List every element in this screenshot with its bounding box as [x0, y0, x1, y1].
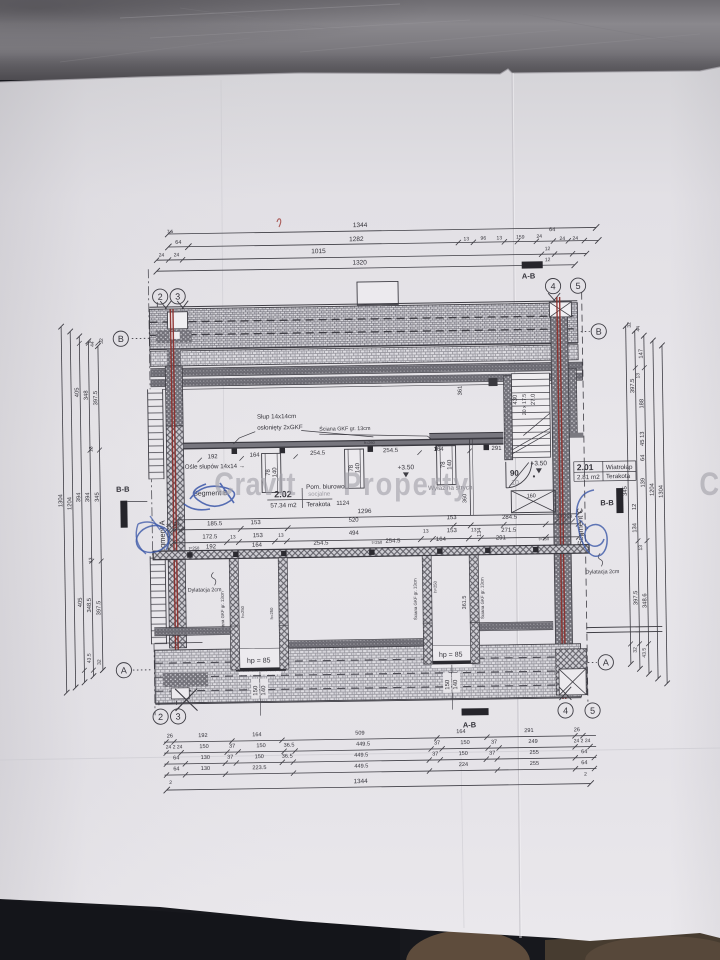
svg-text:430: 430 [513, 395, 519, 405]
svg-text:397.5: 397.5 [93, 391, 99, 406]
svg-text:150: 150 [460, 740, 469, 746]
svg-text:449.5: 449.5 [354, 763, 368, 769]
svg-text:A-B: A-B [522, 271, 536, 280]
svg-text:159: 159 [516, 235, 525, 241]
svg-text:64: 64 [581, 749, 587, 755]
svg-text:13: 13 [638, 545, 644, 551]
svg-text:153: 153 [251, 520, 262, 526]
svg-text:147: 147 [639, 349, 645, 359]
svg-text:12: 12 [545, 246, 551, 252]
svg-text:osłonięty 2xGKF: osłonięty 2xGKF [257, 424, 303, 432]
svg-text:361: 361 [458, 386, 464, 396]
svg-text:192: 192 [208, 454, 219, 460]
svg-text:43.5: 43.5 [87, 653, 93, 663]
svg-text:socjalne: socjalne [308, 492, 331, 498]
svg-text:13: 13 [88, 557, 94, 563]
svg-text:Wiatrołap: Wiatrołap [606, 464, 633, 471]
svg-text:254.5: 254.5 [310, 451, 326, 457]
svg-text:405: 405 [78, 597, 84, 607]
svg-text:Ściana GKF gr. 13cm: Ściana GKF gr. 13cm [480, 577, 486, 619]
svg-text:150: 150 [253, 685, 259, 696]
svg-text:24: 24 [536, 234, 542, 240]
svg-text:150: 150 [199, 744, 208, 750]
svg-text:172.5: 172.5 [202, 534, 218, 540]
svg-text:153: 153 [447, 528, 458, 534]
svg-text:Property: Property [343, 467, 470, 503]
svg-text:13: 13 [496, 235, 502, 241]
svg-text:271.5: 271.5 [501, 528, 517, 534]
svg-text:B: B [118, 334, 124, 344]
svg-text:397.5: 397.5 [633, 591, 639, 606]
svg-text:348: 348 [84, 390, 90, 400]
svg-text:A: A [121, 665, 127, 675]
svg-text:37: 37 [432, 751, 438, 757]
svg-text:43.5: 43.5 [642, 648, 648, 658]
svg-text:1204: 1204 [67, 496, 73, 510]
svg-text:1320: 1320 [352, 259, 367, 266]
svg-text:B-B: B-B [116, 485, 130, 494]
svg-text:32: 32 [99, 338, 105, 344]
svg-text:291: 291 [524, 728, 533, 734]
svg-text:150: 150 [445, 679, 451, 690]
svg-text:64: 64 [549, 227, 555, 233]
svg-text:t=250: t=250 [189, 546, 200, 551]
svg-text:130: 130 [201, 766, 210, 772]
svg-text:249: 249 [528, 739, 537, 745]
svg-text:3: 3 [175, 292, 180, 302]
svg-text:37: 37 [229, 744, 235, 750]
svg-text:64: 64 [640, 454, 646, 461]
svg-text:hp = 85: hp = 85 [439, 652, 463, 659]
svg-text:2: 2 [169, 780, 172, 786]
svg-text:24: 24 [159, 253, 165, 259]
svg-text:254.5: 254.5 [385, 538, 401, 544]
svg-text:1204: 1204 [650, 482, 656, 496]
svg-text:405: 405 [75, 388, 81, 398]
svg-text:13: 13 [635, 373, 641, 379]
svg-text:1296: 1296 [357, 508, 372, 515]
svg-text:361.5: 361.5 [462, 596, 468, 610]
svg-text:185.5: 185.5 [207, 521, 223, 527]
svg-text:4: 4 [550, 281, 555, 291]
svg-text:12: 12 [545, 257, 551, 263]
svg-text:348.6: 348.6 [642, 593, 648, 608]
svg-text:20 x 17.5: 20 x 17.5 [522, 394, 528, 416]
svg-text:4: 4 [563, 706, 568, 716]
svg-text:348.5: 348.5 [87, 598, 93, 613]
svg-text:255: 255 [530, 761, 539, 767]
svg-text:44: 44 [636, 326, 642, 332]
svg-text:192: 192 [198, 733, 207, 739]
svg-text:1304: 1304 [58, 493, 64, 507]
svg-text:h=250: h=250 [269, 607, 274, 620]
svg-text:164: 164 [433, 447, 444, 453]
svg-text:B-B: B-B [600, 498, 614, 507]
svg-text:Cravtt: Cravtt [214, 467, 296, 503]
svg-text:h=250: h=250 [433, 580, 438, 593]
svg-text:509: 509 [355, 731, 364, 737]
svg-text:134: 134 [477, 528, 483, 537]
svg-text:13: 13 [88, 446, 94, 452]
svg-text:26: 26 [167, 733, 173, 739]
svg-text:7,5: 7,5 [167, 229, 174, 234]
svg-text:3: 3 [176, 712, 181, 722]
svg-text:164: 164 [252, 732, 261, 738]
svg-text:h=250: h=250 [240, 605, 245, 618]
svg-text:2: 2 [158, 292, 163, 302]
svg-text:164: 164 [252, 543, 263, 549]
svg-text:394: 394 [76, 492, 82, 503]
svg-text:255: 255 [529, 750, 538, 756]
svg-text:254.5: 254.5 [383, 448, 399, 454]
svg-text:188: 188 [639, 399, 645, 409]
svg-text:24 2 24: 24 2 24 [557, 514, 573, 519]
svg-text:1344: 1344 [354, 778, 369, 785]
svg-text:284.5: 284.5 [502, 515, 518, 521]
svg-text:1344: 1344 [353, 222, 368, 229]
svg-text:449.5: 449.5 [356, 741, 370, 747]
svg-text:Terakota: Terakota [606, 473, 631, 480]
svg-text:12: 12 [632, 504, 638, 511]
svg-text:1304: 1304 [659, 484, 665, 498]
svg-text:13: 13 [463, 236, 469, 242]
svg-text:Dylatacja 2cm: Dylatacja 2cm [585, 569, 619, 576]
svg-text:224: 224 [459, 762, 468, 768]
svg-text:37: 37 [491, 740, 497, 746]
svg-text:164: 164 [436, 537, 447, 543]
svg-text:345: 345 [623, 486, 629, 496]
svg-text:Terakota: Terakota [306, 501, 331, 508]
svg-text:164: 164 [456, 729, 465, 735]
svg-text:2.01: 2.01 [577, 462, 594, 472]
svg-text:+3.50: +3.50 [530, 460, 547, 467]
svg-text:Ściana GKF gr. 13cm: Ściana GKF gr. 13cm [413, 578, 419, 620]
svg-text:37: 37 [227, 755, 233, 761]
svg-text:A: A [603, 658, 609, 668]
svg-text:64: 64 [581, 760, 587, 766]
svg-text:44: 44 [90, 341, 96, 347]
svg-text:24 2 24: 24 2 24 [574, 738, 591, 744]
svg-text:32: 32 [633, 647, 639, 653]
svg-text:153: 153 [447, 515, 458, 521]
svg-text:h=260: h=260 [364, 441, 375, 445]
svg-text:64: 64 [175, 240, 181, 246]
svg-text:291: 291 [491, 446, 502, 452]
svg-text:t=250: t=250 [539, 536, 550, 541]
svg-text:223.5: 223.5 [252, 765, 266, 771]
svg-text:150: 150 [255, 754, 264, 760]
svg-text:Pom. biurowo: Pom. biurowo [306, 483, 345, 491]
svg-text:2: 2 [584, 772, 587, 778]
svg-text:1015: 1015 [311, 248, 326, 255]
svg-text:2: 2 [158, 712, 163, 722]
svg-text:150: 150 [256, 743, 265, 749]
svg-text:32: 32 [97, 659, 103, 665]
svg-text:90: 90 [510, 469, 520, 478]
svg-text:254.5: 254.5 [313, 541, 329, 547]
svg-text:5: 5 [590, 706, 595, 716]
svg-text:164: 164 [250, 453, 261, 459]
svg-text:13: 13 [278, 533, 284, 539]
svg-text:C: C [699, 467, 719, 503]
svg-text:24: 24 [174, 252, 180, 258]
svg-text:192: 192 [206, 544, 217, 550]
svg-text:449.5: 449.5 [354, 752, 368, 758]
svg-text:291: 291 [496, 535, 507, 541]
svg-text:hp = 85: hp = 85 [247, 657, 271, 664]
svg-text:36.5: 36.5 [282, 754, 293, 760]
svg-text:96: 96 [480, 236, 486, 242]
svg-text:494: 494 [349, 531, 360, 537]
svg-text:520: 520 [349, 518, 360, 524]
svg-text:2.81 m2: 2.81 m2 [577, 474, 600, 481]
svg-text:32: 32 [627, 322, 633, 328]
svg-text:13: 13 [423, 529, 429, 535]
svg-text:150: 150 [459, 751, 468, 757]
svg-text:27.0: 27.0 [531, 394, 537, 405]
svg-text:140: 140 [261, 685, 267, 696]
svg-text:1282: 1282 [349, 236, 364, 243]
svg-text:t=250: t=250 [372, 540, 383, 545]
svg-text:130: 130 [201, 755, 210, 761]
svg-text:140: 140 [453, 679, 459, 690]
svg-text:Dylatacja 2cm: Dylatacja 2cm [188, 587, 222, 594]
svg-text:139: 139 [641, 478, 647, 488]
svg-text:B: B [596, 327, 602, 337]
svg-text:64: 64 [173, 766, 179, 772]
svg-text:160: 160 [527, 493, 536, 499]
svg-text:5: 5 [575, 281, 580, 291]
svg-text:64: 64 [173, 755, 179, 761]
svg-text:345: 345 [95, 492, 101, 502]
svg-text:24: 24 [559, 236, 565, 242]
svg-text:397.5: 397.5 [630, 379, 636, 394]
svg-text:153: 153 [253, 533, 264, 539]
svg-text:394: 394 [85, 492, 91, 503]
svg-text:10: 10 [511, 480, 519, 487]
svg-text:36.5: 36.5 [284, 743, 295, 749]
svg-text:24 2 24: 24 2 24 [166, 744, 183, 750]
svg-text:26: 26 [574, 727, 580, 733]
svg-text:24 2 24: 24 2 24 [166, 523, 182, 528]
svg-text:134: 134 [632, 522, 638, 533]
svg-text:45 13: 45 13 [640, 431, 646, 446]
svg-text:13: 13 [230, 534, 236, 540]
svg-text:24: 24 [572, 236, 578, 242]
svg-text:37: 37 [489, 751, 495, 757]
svg-text:37: 37 [434, 740, 440, 746]
svg-text:397.5: 397.5 [96, 601, 102, 616]
svg-text:Słup 14x14cm: Słup 14x14cm [257, 413, 296, 421]
svg-text:57.34 m2: 57.34 m2 [270, 502, 297, 509]
